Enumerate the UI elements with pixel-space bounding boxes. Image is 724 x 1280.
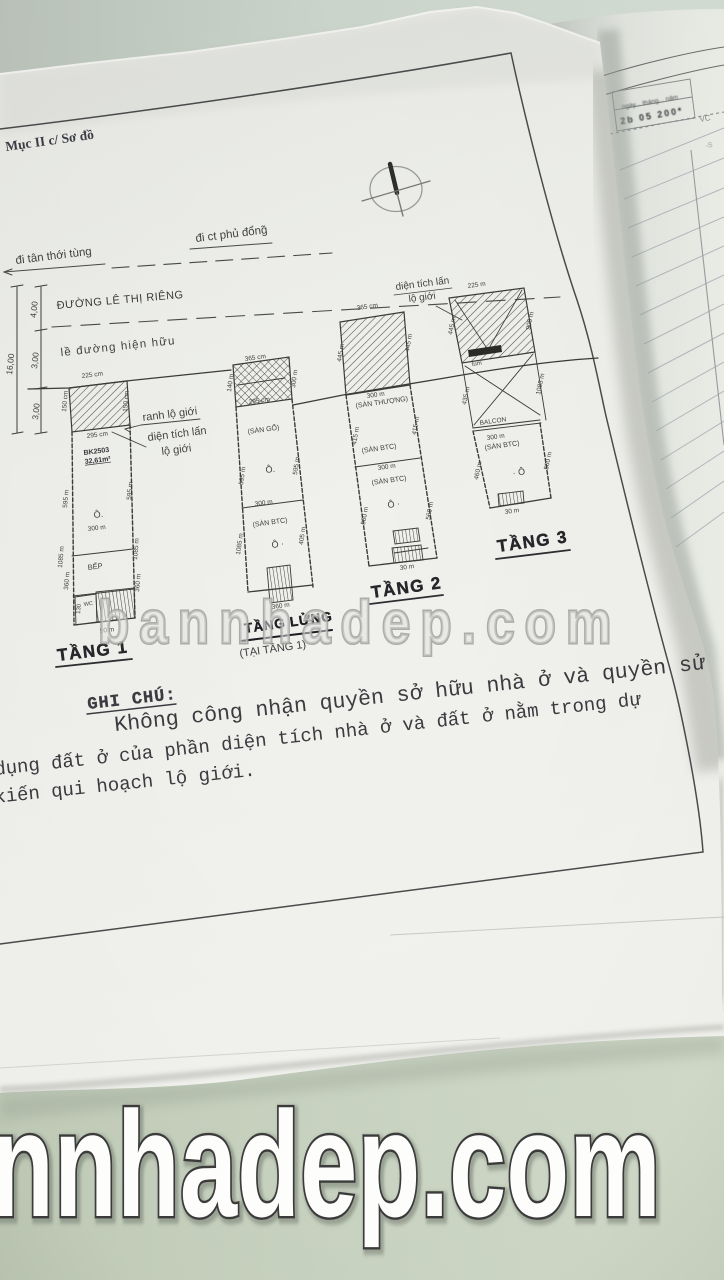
svg-text:nnhadep.com: nnhadep.com: [0, 1082, 661, 1249]
svg-text:bannhadep.com: bannhadep.com: [98, 589, 622, 656]
